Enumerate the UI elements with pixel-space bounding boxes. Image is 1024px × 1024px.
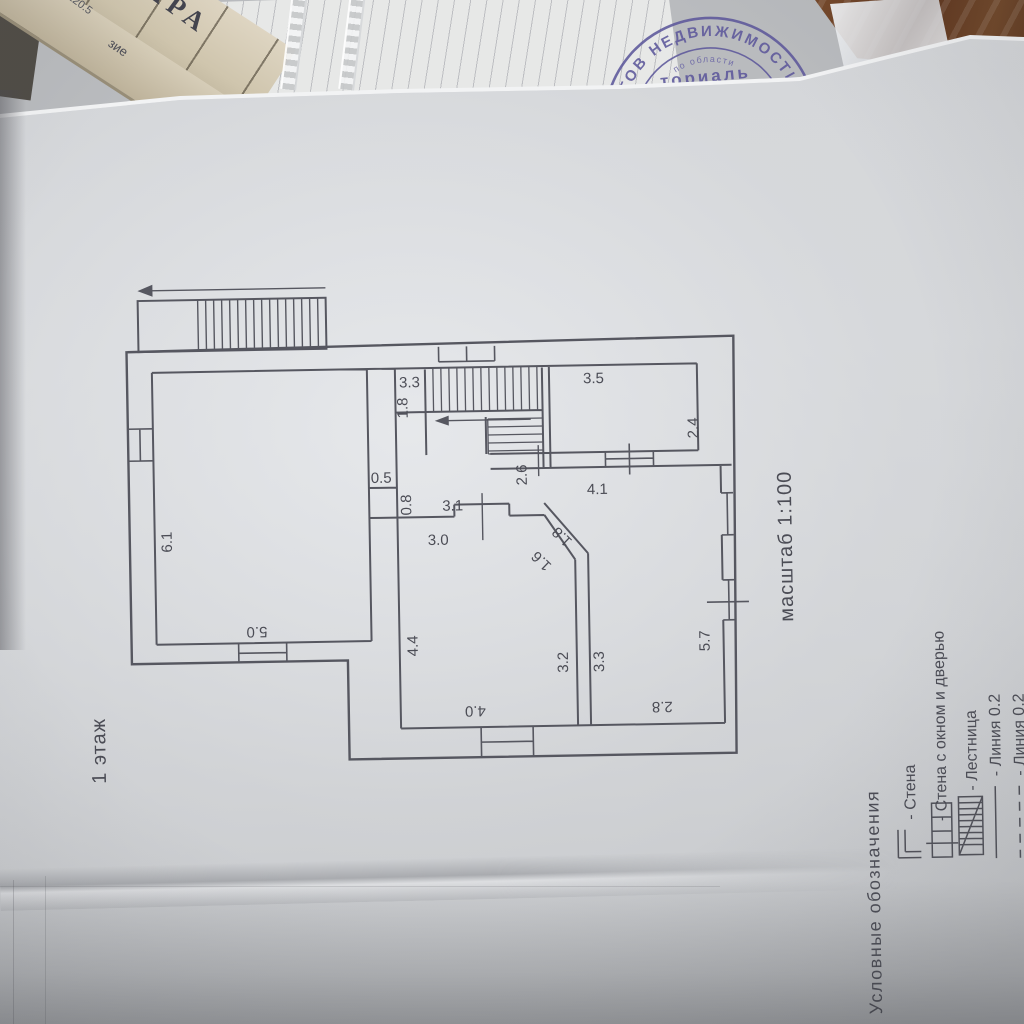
porch-outline bbox=[138, 298, 327, 352]
window-symbol-bottom-wall bbox=[481, 726, 534, 757]
dim-label: 6.1 bbox=[159, 532, 176, 553]
stair-arrow-head-icon bbox=[435, 416, 449, 426]
dim-label: 3.2 bbox=[555, 652, 572, 673]
under-sheet-frame-line bbox=[13, 880, 14, 1024]
photo-of-floor-plan-document: ПАРА 120.5 зие КТОВ НЕДВИЖИМОСТИ по обла… bbox=[0, 0, 1024, 1024]
dim-label: 2.6 bbox=[514, 464, 531, 485]
porch-arrow-line bbox=[149, 288, 325, 291]
under-sheet-frame-line bbox=[45, 876, 46, 1024]
scale-label: масштаб 1:100 bbox=[774, 471, 799, 622]
dim-label: 1.8 bbox=[394, 397, 411, 418]
porch-stairs-treads bbox=[198, 298, 319, 351]
dim-label: 4.1 bbox=[587, 481, 608, 498]
dim-label: 3.3 bbox=[591, 651, 608, 672]
door-tick-hall-wall bbox=[482, 493, 483, 540]
legend-item-label: - Стена bbox=[902, 764, 920, 819]
window-symbol-left-wall bbox=[128, 429, 154, 461]
legend-item-label: - Линия 0.2 bbox=[1011, 693, 1024, 776]
dim-label: 3.5 bbox=[583, 370, 604, 387]
window-symbol-right-wall-lower bbox=[707, 579, 750, 620]
dim-label: 2.8 bbox=[652, 698, 673, 715]
legend-item-label: - Стена с окном и дверью bbox=[930, 631, 950, 822]
dim-label: 2.4 bbox=[685, 417, 702, 438]
floor-plan-lines bbox=[125, 274, 751, 763]
dim-label: 5.0 bbox=[246, 623, 267, 640]
legend-header: Условные обозначения bbox=[862, 790, 886, 1015]
dashed-line-icon bbox=[1019, 786, 1020, 858]
under-sheet-frame-line bbox=[0, 886, 720, 887]
dim-label: 4.0 bbox=[465, 702, 486, 719]
legend: Условные обозначения - Стена - Стена с о… bbox=[860, 629, 1024, 1014]
window-symbol-top-wall bbox=[438, 346, 494, 362]
solid-line-icon bbox=[995, 786, 996, 858]
window-symbol-living-room bbox=[239, 643, 287, 663]
floor-title: 1 этаж bbox=[88, 718, 111, 784]
dim-label: 3.0 bbox=[428, 532, 449, 549]
dim-label: 4.4 bbox=[404, 635, 421, 656]
wall-corner-icon bbox=[898, 829, 921, 857]
dim-label: 1.6 bbox=[528, 548, 555, 575]
legend-item-label: - Линия 0.2 bbox=[987, 694, 1005, 777]
stair-treads-upper bbox=[433, 366, 538, 412]
dim-label: 0.8 bbox=[398, 494, 415, 515]
stair-arrow-line bbox=[446, 419, 531, 420]
dim-label: 3.3 bbox=[399, 374, 420, 391]
dim-label: 5.7 bbox=[696, 630, 713, 651]
dim-label: 3.1 bbox=[442, 497, 463, 514]
legend-item-label: - Лестница bbox=[963, 710, 981, 791]
window-symbol-right-wall-upper bbox=[721, 493, 734, 535]
dimension-labels: 6.1 5.0 3.3 1.8 3.5 2.4 2.6 4.1 0.5 0.8 … bbox=[156, 368, 715, 725]
porch-arrow-head-icon bbox=[137, 285, 152, 297]
stairs-icon bbox=[958, 796, 983, 854]
window-symbol-room35 bbox=[605, 443, 654, 475]
dim-label: 0.5 bbox=[371, 470, 392, 487]
stair-treads-lower bbox=[488, 418, 544, 454]
